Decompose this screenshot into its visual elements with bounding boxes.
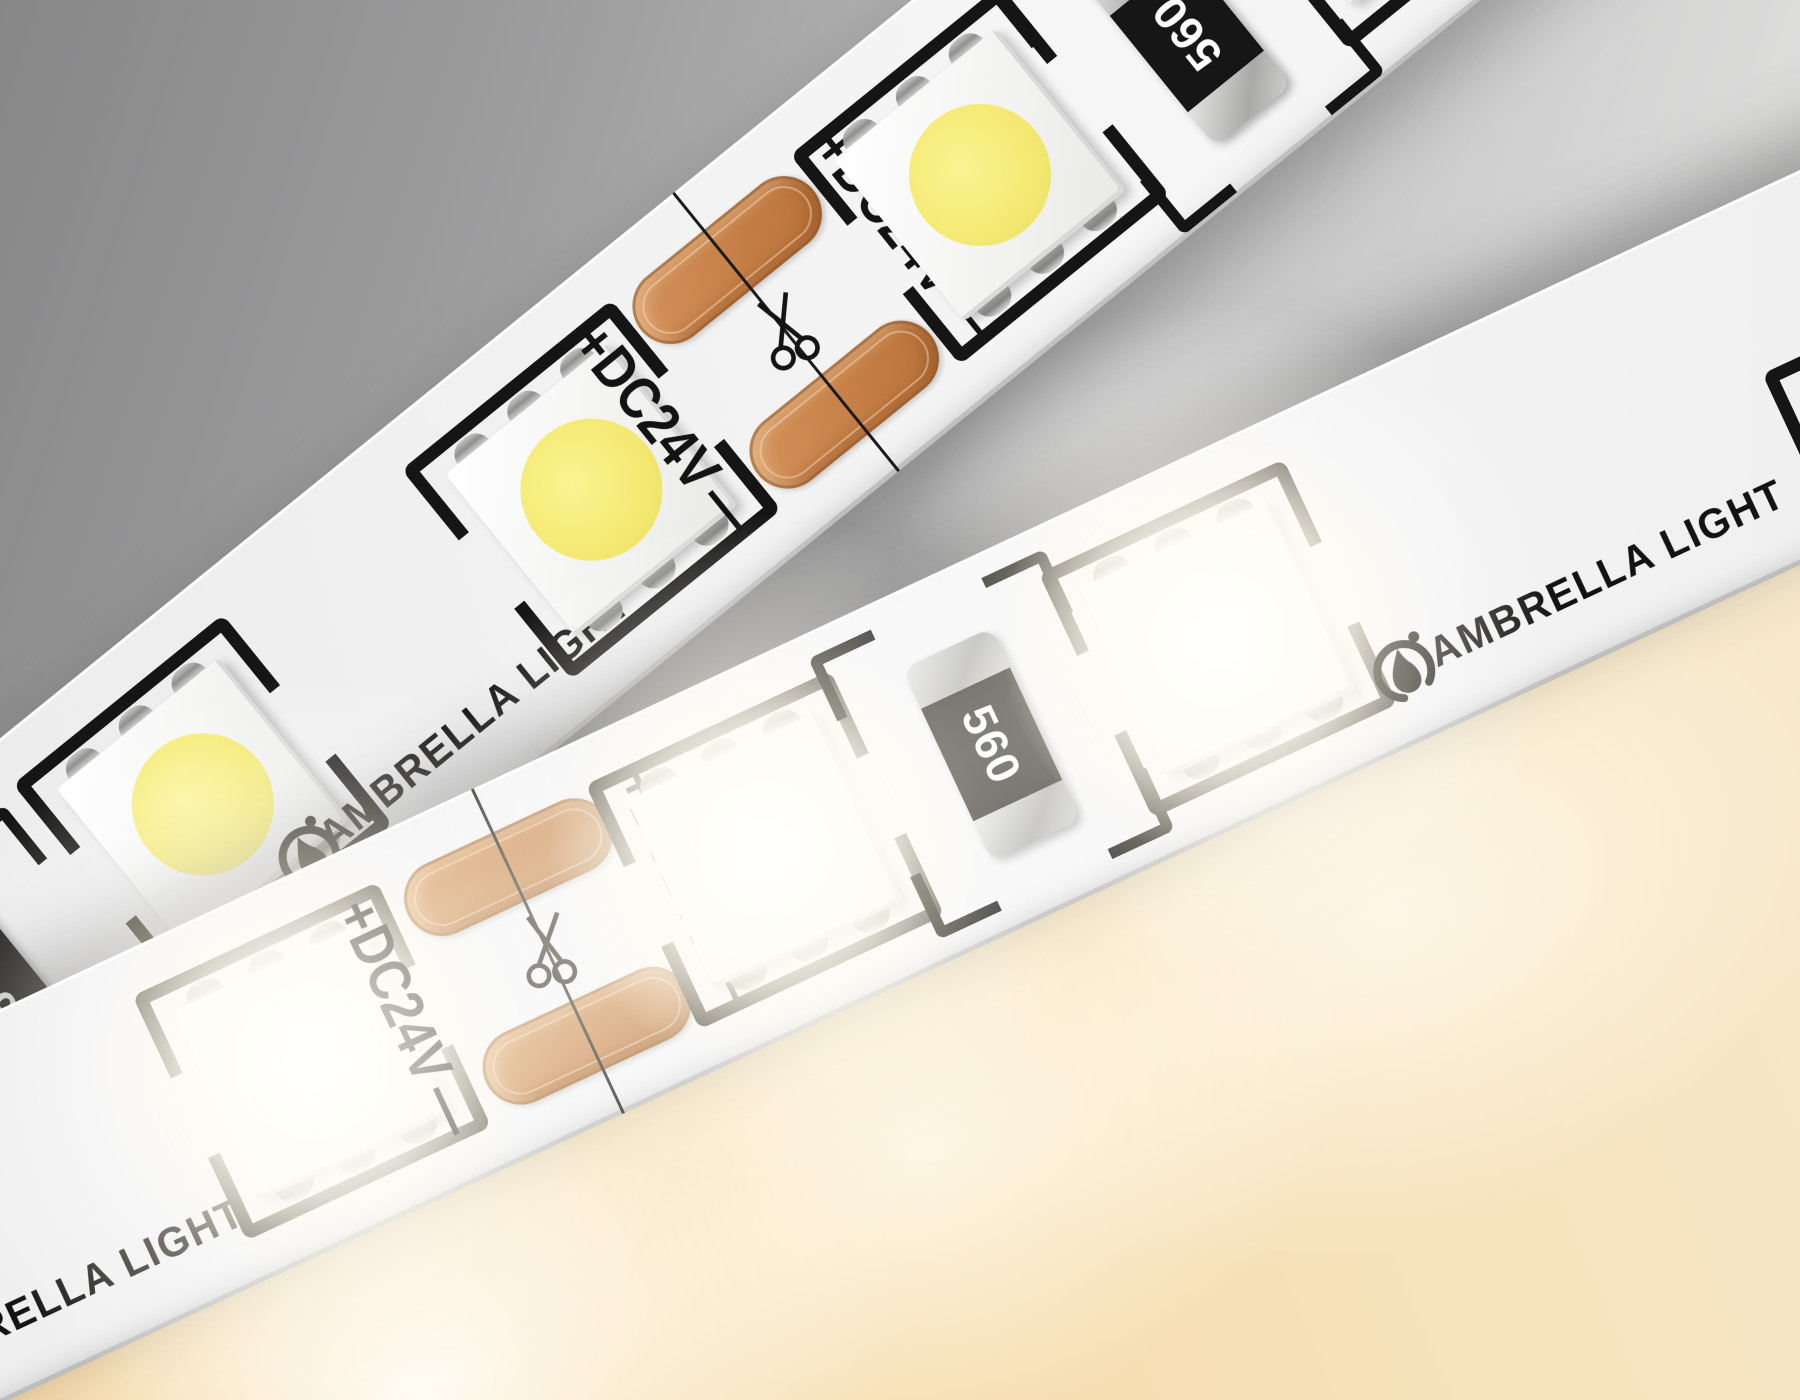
resistor: 560 — [1082, 0, 1292, 146]
voltage-text: DC24V — [336, 915, 464, 1092]
silkscreen-frame — [1762, 260, 1800, 457]
led-module-lit — [1039, 459, 1398, 818]
resistor-label: 560 — [1141, 0, 1233, 81]
led-module — [1762, 260, 1800, 619]
silkscreen-bracket — [0, 805, 47, 902]
silkscreen-bracket — [1140, 138, 1237, 235]
voltage-text: DC24V — [579, 334, 733, 503]
product-photo-led-strips: 560 AMBRELLA LIGHT — [0, 0, 1800, 1400]
